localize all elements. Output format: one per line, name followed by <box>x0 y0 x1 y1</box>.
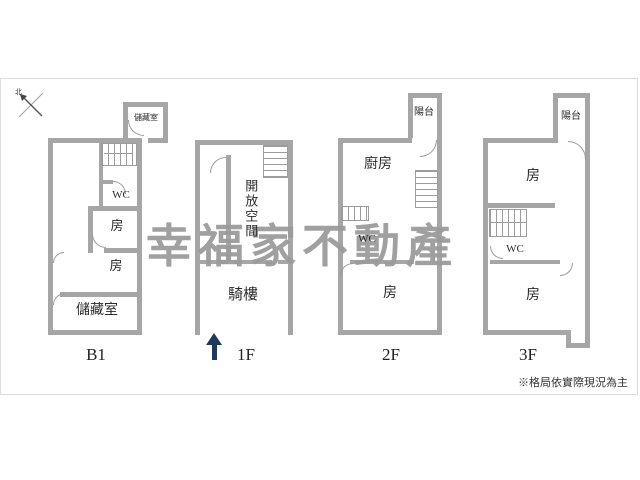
b1-wc-label: WC <box>106 189 136 201</box>
f3-floor-label: 3F <box>498 345 558 365</box>
b1-room1-label: 房 <box>97 219 137 233</box>
wall-segment <box>489 222 527 223</box>
b1-storage-top-label: 儲藏室 <box>124 114 168 123</box>
north-compass-icon: 北 <box>12 86 50 124</box>
stairs <box>101 143 137 166</box>
stairs <box>415 170 438 208</box>
b1-room2-label: 房 <box>96 259 136 273</box>
wall-segment <box>60 292 142 297</box>
f2-floor-label: 2F <box>361 345 421 365</box>
watermark-text: 幸福家不動產 <box>146 210 458 276</box>
f1-open-space-label: 開放空間 <box>243 173 257 245</box>
f3-wc-label: WC <box>500 243 530 255</box>
wall-segment <box>148 138 168 143</box>
b1-storage-bottom-label: 儲藏室 <box>62 303 132 318</box>
f1-arcade-label: 騎樓 <box>213 287 273 304</box>
wall-segment <box>48 330 142 335</box>
f2-room-label: 房 <box>370 286 410 301</box>
wall-segment <box>338 138 412 143</box>
stairs <box>489 209 527 237</box>
wall-segment <box>585 138 590 348</box>
wall-segment <box>88 206 142 211</box>
wall-segment <box>48 138 53 335</box>
stairs <box>263 145 288 178</box>
f2-balcony-label: 陽台 <box>404 107 444 118</box>
wall-segment <box>483 330 568 335</box>
floorplan-image: 北 幸福家不動產 儲藏室 WC 房 房 儲藏室 B1 <box>0 0 640 480</box>
f2-kitchen-label: 廚房 <box>348 157 408 172</box>
f3-room-top-label: 房 <box>513 169 553 184</box>
wall-segment <box>490 260 560 264</box>
compass-north-label: 北 <box>15 88 22 96</box>
b1-floor-label: B1 <box>66 345 126 365</box>
wall-segment <box>104 248 142 253</box>
f1-floor-label: 1F <box>216 345 276 365</box>
f3-room-bottom-label: 房 <box>513 288 553 303</box>
wall-segment <box>483 138 558 143</box>
wall-segment <box>483 138 488 335</box>
wall-segment <box>88 206 93 253</box>
f3-balcony-label: 陽台 <box>551 111 591 122</box>
wall-segment <box>338 330 442 335</box>
wall-segment <box>566 343 590 348</box>
wall-segment <box>104 153 132 154</box>
wall-segment <box>123 102 168 107</box>
wall-segment <box>99 180 113 184</box>
disclaimer-note: ※格局依實際現況為主 <box>518 374 628 390</box>
wall-segment <box>137 138 142 335</box>
wall-segment <box>483 203 555 208</box>
f2-wc-label: WC <box>352 233 382 245</box>
